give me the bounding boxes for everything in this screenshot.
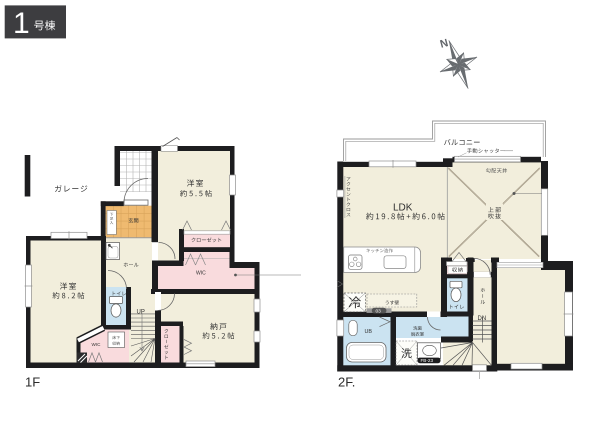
svg-text:1F: 1F xyxy=(25,375,40,390)
svg-text:UP: UP xyxy=(137,310,145,316)
svg-text:LDK: LDK xyxy=(393,203,413,214)
svg-text:03: 03 xyxy=(376,308,382,314)
svg-text:WIC: WIC xyxy=(196,271,206,277)
svg-text:DN: DN xyxy=(478,316,487,322)
svg-text:UB: UB xyxy=(365,329,373,335)
svg-text:2F.: 2F. xyxy=(338,375,355,390)
svg-text:WIC: WIC xyxy=(92,342,102,347)
svg-text:1: 1 xyxy=(13,7,30,40)
svg-text:FB-23: FB-23 xyxy=(421,358,434,363)
